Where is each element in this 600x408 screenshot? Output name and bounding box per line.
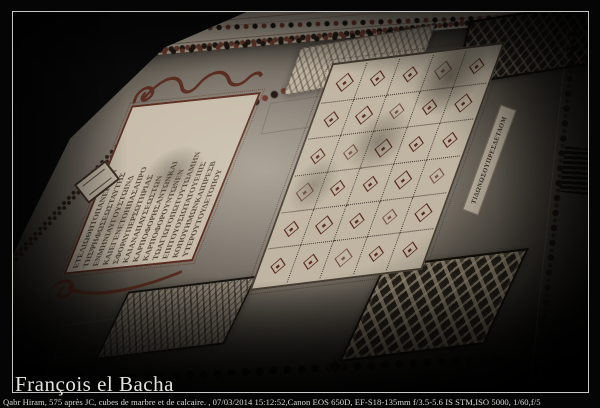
- photograph: ΕΤΕΛΙΩΘΗΤΟΠΑΝΕΡΓΟΝΤΗΣΨΗΦΩΣΕΩΣΤΑΥΤΗΣΕΝΜΗΝ…: [12, 11, 589, 393]
- watermark: François el Bacha: [15, 374, 174, 395]
- caption: Qabr Hiram, 575 après JC, cubes de marbr…: [3, 397, 599, 407]
- mosaic-scene: ΕΤΕΛΙΩΘΗΤΟΠΑΝΕΡΓΟΝΤΗΣΨΗΦΩΣΕΩΣΤΑΥΤΗΣΕΝΜΗΝ…: [13, 12, 588, 392]
- vignette-overlay: [13, 12, 588, 392]
- photo-card: ΕΤΕΛΙΩΘΗΤΟΠΑΝΕΡΓΟΝΤΗΣΨΗΦΩΣΕΩΣΤΑΥΤΗΣΕΝΜΗΝ…: [0, 0, 600, 408]
